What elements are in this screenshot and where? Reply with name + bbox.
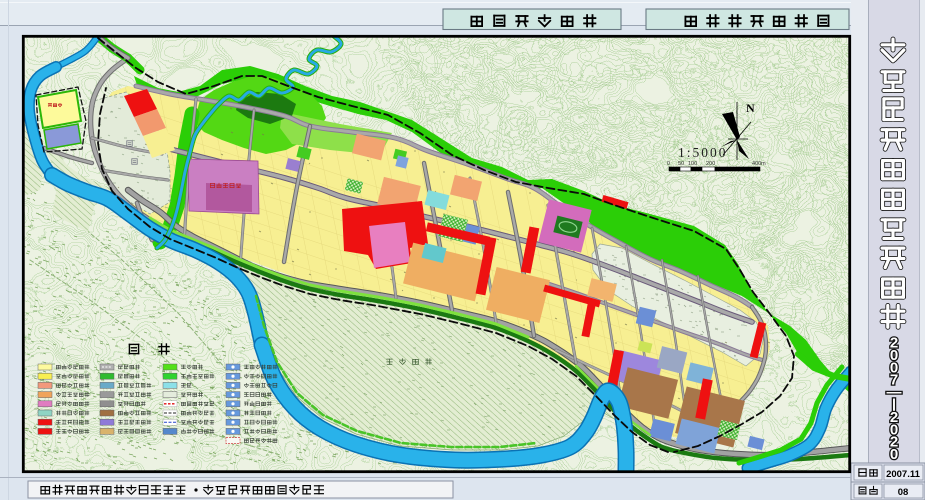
svg-text:50: 50	[678, 161, 684, 167]
svg-text:200: 200	[706, 161, 715, 167]
svg-text:400m: 400m	[752, 161, 766, 167]
svg-text:100: 100	[688, 161, 697, 167]
svg-text:0: 0	[890, 446, 898, 463]
svg-text:08: 08	[898, 487, 909, 498]
svg-text:0: 0	[667, 161, 670, 167]
svg-text:N: N	[746, 101, 755, 115]
svg-text:2007.11: 2007.11	[886, 469, 921, 480]
svg-text:1:5000: 1:5000	[678, 145, 728, 160]
